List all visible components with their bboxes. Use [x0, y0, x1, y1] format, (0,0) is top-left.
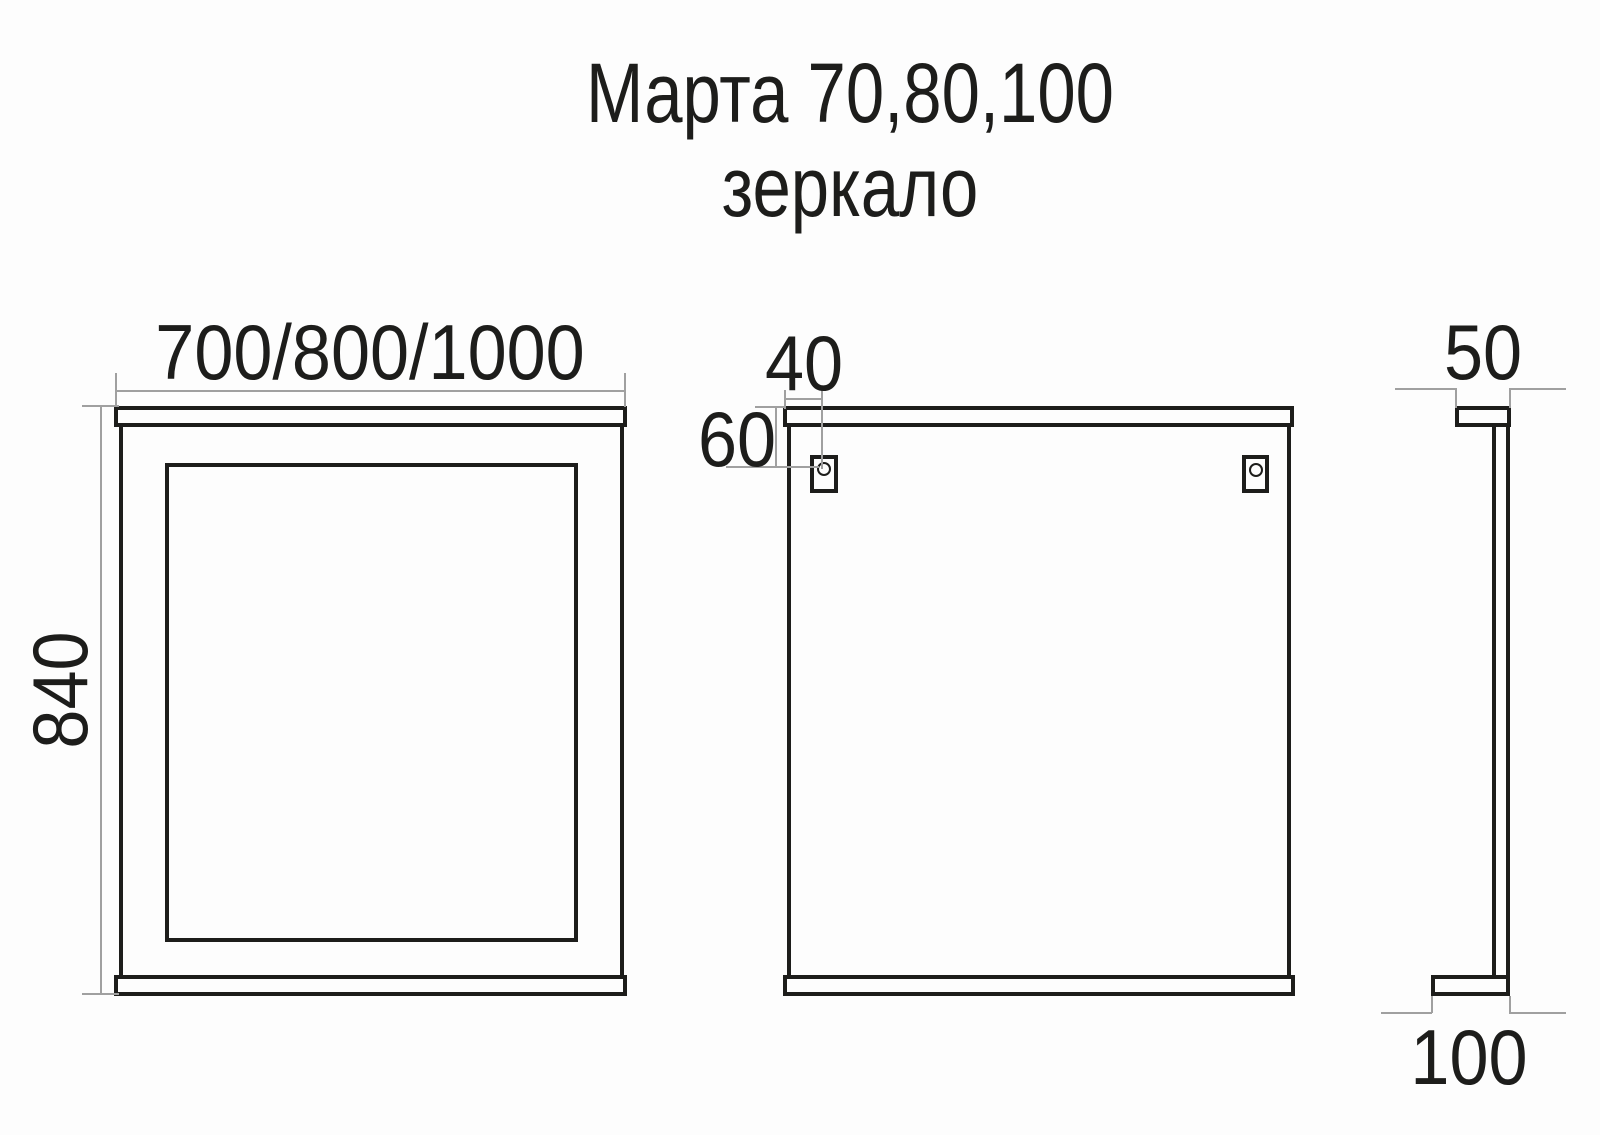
front-top-shelf	[114, 406, 627, 427]
side-bottom-ext-right	[1509, 996, 1511, 1013]
bracket-y-label: 60	[683, 400, 791, 478]
front-width-ext-left	[115, 373, 117, 407]
back-top-shelf	[783, 406, 1294, 427]
side-bottom-ext-left	[1431, 996, 1433, 1013]
front-height-label: 840	[18, 625, 102, 755]
front-width-label: 700/800/1000	[145, 313, 595, 391]
bracket-hole-right	[1249, 463, 1263, 477]
drawing-canvas: Марта 70,80,100 зеркало 700/800/1000 840…	[0, 0, 1600, 1135]
side-body-strip	[1492, 425, 1510, 977]
bracket-x-label: 40	[750, 324, 858, 402]
side-bottom-depth-label: 100	[1388, 1018, 1550, 1096]
back-bottom-shelf	[783, 975, 1295, 996]
drawing-title-line2: зеркало	[522, 140, 1178, 234]
side-top-depth-label: 50	[1429, 313, 1537, 391]
mirror-glass	[165, 463, 578, 942]
front-height-ext-bottom	[82, 993, 119, 995]
front-width-ext-right	[624, 373, 626, 407]
side-bottom-shelf	[1431, 975, 1510, 996]
drawing-title: Марта 70,80,100 зеркало	[522, 46, 1178, 234]
drawing-title-line1: Марта 70,80,100	[522, 46, 1178, 140]
bracket-hole-left	[817, 462, 831, 476]
back-body	[787, 425, 1291, 977]
front-height-ext-top	[82, 405, 119, 407]
side-top-shelf	[1455, 406, 1511, 427]
front-bottom-shelf	[114, 975, 627, 996]
